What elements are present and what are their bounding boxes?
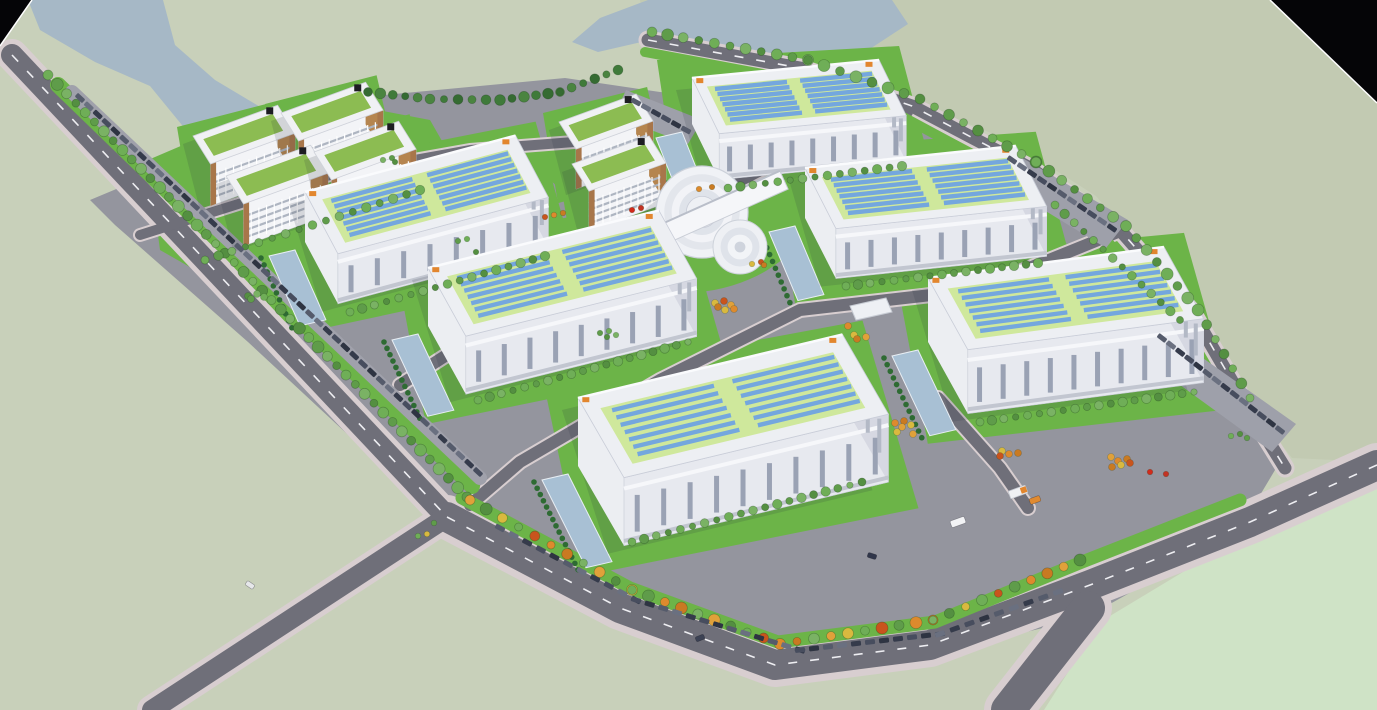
tree: [903, 276, 909, 282]
tree: [652, 532, 660, 540]
tree: [1036, 410, 1042, 416]
tree: [1006, 451, 1013, 458]
tree: [843, 628, 854, 639]
tree: [286, 314, 295, 323]
tree: [508, 94, 516, 102]
hedge: [559, 536, 565, 542]
tree: [312, 341, 324, 353]
tree: [998, 264, 1005, 271]
tree: [183, 211, 193, 221]
tree: [580, 80, 587, 87]
hedge: [384, 346, 390, 352]
roof-access-accent: [582, 397, 589, 402]
hedge: [563, 542, 569, 548]
tree: [1022, 260, 1030, 268]
tree: [1083, 403, 1090, 410]
tree: [249, 277, 257, 285]
tree: [1009, 261, 1019, 271]
tree: [515, 523, 523, 531]
tree: [861, 167, 868, 174]
tree: [590, 363, 599, 372]
tree: [944, 109, 955, 120]
tree: [1192, 304, 1204, 316]
tree: [351, 380, 359, 388]
tree: [497, 513, 507, 523]
hedge: [906, 408, 912, 414]
tree: [1229, 365, 1237, 373]
hedge: [541, 498, 547, 504]
tree: [370, 301, 378, 309]
tree: [604, 334, 610, 340]
tree: [637, 350, 647, 360]
hedge: [393, 365, 399, 371]
hedge: [258, 255, 264, 261]
hedge: [781, 286, 787, 292]
tree: [818, 60, 830, 72]
rooftop-vent: [266, 107, 273, 114]
hedge: [900, 395, 906, 401]
tree: [383, 298, 389, 304]
end-pier: [211, 162, 217, 206]
tree: [117, 145, 128, 156]
tree: [974, 267, 981, 274]
tree: [1191, 389, 1197, 395]
tree: [749, 181, 757, 189]
hedge: [381, 339, 387, 345]
rooftop-vent: [299, 147, 306, 154]
end-pier: [589, 189, 595, 231]
tree: [842, 282, 850, 290]
hedge: [897, 388, 903, 394]
tree: [254, 291, 261, 298]
tree: [973, 125, 984, 136]
tree: [308, 221, 317, 230]
tree: [1163, 471, 1169, 477]
hedge: [544, 504, 550, 510]
tree: [293, 322, 305, 334]
hedge: [261, 262, 267, 268]
tree: [899, 424, 906, 431]
tree: [1128, 271, 1137, 280]
tree: [296, 226, 302, 232]
tree: [547, 541, 555, 549]
tree: [613, 357, 623, 367]
tree: [1108, 454, 1115, 461]
tree: [1228, 433, 1234, 439]
tree: [396, 426, 407, 437]
tree: [812, 174, 818, 180]
industrial-park-aerial-view: [0, 0, 1377, 710]
tree: [415, 185, 425, 195]
tree: [594, 567, 605, 578]
tree: [994, 589, 1002, 597]
tree: [867, 77, 877, 87]
tree: [892, 420, 899, 427]
tree: [341, 370, 351, 380]
tree: [465, 495, 475, 505]
tree: [1000, 415, 1008, 423]
tree: [452, 482, 464, 494]
tree: [976, 418, 984, 426]
tree: [787, 177, 793, 183]
hedge: [396, 371, 402, 377]
tree: [62, 89, 72, 99]
tree: [960, 119, 968, 127]
tree: [474, 396, 482, 404]
tree: [709, 184, 715, 190]
hedge: [534, 485, 540, 491]
tree: [191, 219, 203, 231]
hedge: [531, 479, 537, 485]
tree: [230, 259, 238, 267]
tree: [456, 277, 463, 284]
rooftop-vent: [387, 123, 394, 130]
tree: [1070, 219, 1078, 227]
tree: [662, 29, 674, 41]
tree: [543, 88, 554, 99]
tree: [1096, 204, 1104, 212]
factory-building-2: [789, 146, 1047, 287]
roof-access-accent: [646, 214, 653, 219]
tree: [473, 249, 479, 255]
tree: [1082, 194, 1092, 204]
tree: [731, 306, 738, 313]
tree: [850, 71, 862, 83]
tree: [726, 42, 734, 50]
tree: [1012, 414, 1018, 420]
tree: [378, 407, 389, 418]
tree: [757, 48, 765, 56]
tree: [876, 622, 888, 634]
tree: [1031, 157, 1041, 167]
hedge: [778, 279, 784, 285]
tree: [433, 463, 445, 475]
tree: [248, 296, 255, 303]
tree: [1219, 349, 1229, 359]
tree: [938, 270, 947, 279]
tree: [886, 164, 893, 171]
hedge: [919, 435, 925, 441]
tree: [212, 240, 220, 248]
tree: [797, 493, 807, 503]
hedge: [387, 352, 393, 358]
tree: [1043, 165, 1055, 177]
tree: [1109, 464, 1116, 471]
tree: [1057, 175, 1067, 185]
tree: [370, 399, 378, 407]
hedge: [399, 377, 405, 383]
hedge: [891, 375, 897, 381]
tree: [532, 91, 541, 100]
tree: [519, 91, 530, 102]
tree: [495, 95, 506, 106]
roof-access-accent: [866, 62, 873, 67]
hedge: [910, 415, 916, 421]
tree: [432, 284, 438, 290]
tree: [724, 184, 732, 192]
tree: [440, 96, 447, 103]
tree: [987, 416, 997, 426]
tree: [660, 344, 670, 354]
tree: [1015, 450, 1022, 457]
tree: [722, 307, 729, 314]
tree: [269, 235, 275, 241]
tree: [836, 67, 845, 76]
tree: [1121, 221, 1132, 232]
tree: [425, 94, 435, 104]
tree: [349, 208, 356, 215]
tree: [774, 178, 782, 186]
tree: [603, 361, 610, 368]
tree: [424, 531, 430, 537]
tree: [721, 298, 728, 305]
tree: [740, 43, 751, 54]
tree: [762, 504, 769, 511]
tree: [894, 620, 904, 630]
tree: [481, 95, 491, 105]
hedge: [881, 355, 887, 361]
rooftop-vent: [354, 84, 361, 91]
tree: [431, 520, 437, 526]
tree: [606, 328, 612, 334]
hedge: [402, 384, 408, 390]
tree: [1131, 397, 1138, 404]
hedge: [556, 529, 562, 535]
tree: [1071, 185, 1079, 193]
tree: [736, 182, 746, 192]
tree: [872, 164, 882, 174]
tree: [695, 36, 703, 44]
tree: [1089, 236, 1097, 244]
tree: [676, 525, 684, 533]
tree: [361, 203, 371, 213]
tree: [897, 161, 907, 171]
tree: [567, 83, 576, 92]
tree: [560, 210, 566, 216]
tree: [322, 217, 329, 224]
tree: [1002, 141, 1013, 152]
tree: [281, 229, 290, 238]
tree: [1119, 264, 1125, 270]
tree: [879, 278, 885, 284]
tree: [915, 94, 925, 104]
tree: [910, 431, 917, 438]
tree: [388, 90, 397, 99]
tree: [1202, 320, 1212, 330]
tree: [890, 276, 898, 284]
tree: [715, 304, 722, 311]
tree: [660, 598, 669, 607]
tree: [556, 88, 563, 95]
architectural-rendering-stage: aerial-3d-rendering-of-industrial-park-c…: [0, 0, 1377, 710]
tree: [672, 341, 680, 349]
hedge: [553, 523, 559, 529]
tree: [201, 229, 211, 239]
tree: [1147, 289, 1156, 298]
tree: [1033, 258, 1043, 268]
tree: [927, 273, 933, 279]
tree: [823, 171, 832, 180]
tree: [639, 534, 649, 544]
tree: [415, 533, 421, 539]
tree: [1108, 254, 1117, 263]
tree: [977, 595, 988, 606]
tree: [700, 519, 709, 528]
tree: [521, 383, 529, 391]
tree: [91, 118, 99, 126]
tree: [146, 174, 155, 183]
roof-access-accent: [829, 338, 836, 343]
tree: [304, 333, 314, 343]
tree: [1154, 393, 1162, 401]
tree: [988, 134, 997, 143]
hedge: [787, 300, 793, 306]
rooftop-vent: [625, 96, 632, 103]
tree: [804, 56, 813, 65]
tree: [845, 323, 852, 330]
tree: [626, 355, 633, 362]
tree: [172, 200, 184, 212]
tree: [613, 65, 623, 75]
tree: [1027, 576, 1036, 585]
tree: [480, 503, 492, 515]
tree: [836, 170, 843, 177]
tree: [510, 387, 516, 393]
tree: [809, 633, 820, 644]
tree: [505, 263, 512, 270]
tree: [1060, 209, 1070, 219]
tree: [1108, 211, 1119, 222]
hedge: [784, 293, 790, 299]
tree: [847, 482, 853, 488]
tree: [154, 182, 166, 194]
tree: [395, 294, 403, 302]
tree: [772, 499, 782, 509]
tree: [931, 103, 939, 111]
tree: [453, 94, 463, 104]
tree: [590, 74, 600, 84]
tree: [408, 291, 414, 297]
tree: [1107, 400, 1114, 407]
tree: [1118, 397, 1128, 407]
end-pier: [244, 202, 250, 246]
tree: [1147, 469, 1153, 475]
tree: [914, 273, 923, 282]
tree: [628, 538, 636, 546]
tree: [1178, 390, 1186, 398]
tree: [228, 247, 236, 255]
tree: [1173, 282, 1182, 291]
tree: [530, 531, 540, 541]
tree: [649, 348, 657, 356]
tree: [908, 422, 915, 429]
tree: [1142, 394, 1152, 404]
tree: [1237, 431, 1243, 437]
tree: [737, 510, 744, 517]
tree: [562, 549, 573, 560]
roof-access-accent: [809, 168, 816, 173]
tree: [443, 280, 452, 289]
tree: [480, 270, 487, 277]
hedge: [405, 390, 411, 396]
tree: [950, 269, 957, 276]
tree: [1161, 268, 1173, 280]
hedge: [390, 358, 396, 364]
tree: [962, 267, 971, 276]
tree: [603, 71, 610, 78]
hedge: [767, 252, 773, 258]
tree: [1071, 404, 1080, 413]
tree: [910, 617, 922, 629]
hedge: [537, 492, 543, 498]
tree: [127, 155, 136, 164]
tree: [793, 637, 801, 645]
tree: [1060, 407, 1066, 413]
tree: [467, 273, 476, 282]
tree: [333, 362, 341, 370]
tree: [1042, 568, 1053, 579]
hedge: [894, 382, 900, 388]
annex-core: [735, 242, 746, 253]
tree: [542, 214, 548, 220]
tree: [848, 168, 857, 177]
tree: [944, 608, 954, 618]
tree: [642, 590, 654, 602]
tree: [1182, 292, 1194, 304]
tree: [455, 238, 461, 244]
tree: [1094, 401, 1103, 410]
tree: [1246, 394, 1254, 402]
tree: [375, 88, 386, 99]
hedge: [776, 272, 782, 278]
tree: [335, 212, 344, 221]
tree: [929, 616, 937, 624]
tree: [834, 484, 842, 492]
tree: [1138, 281, 1145, 288]
tree: [1236, 378, 1247, 389]
tree: [798, 174, 807, 183]
tree: [1176, 316, 1183, 323]
tree: [863, 334, 870, 341]
tree: [551, 212, 557, 218]
tree: [1141, 245, 1152, 256]
tree: [853, 280, 863, 290]
roof-access-accent: [432, 267, 439, 272]
tree: [556, 374, 562, 380]
hedge: [550, 517, 556, 523]
tree: [72, 99, 80, 107]
tree: [1166, 306, 1176, 316]
tree: [749, 506, 758, 515]
tree: [214, 251, 224, 261]
tree: [1074, 554, 1086, 566]
tree: [1059, 562, 1068, 571]
tree: [762, 180, 768, 186]
tree: [665, 529, 671, 535]
tree: [403, 190, 411, 198]
tree: [1051, 201, 1059, 209]
tree: [485, 392, 495, 402]
hedge: [887, 368, 893, 374]
tree: [392, 159, 398, 165]
hedge: [547, 511, 553, 517]
tree: [1127, 460, 1134, 467]
tree: [516, 258, 526, 268]
roof-access-accent: [309, 191, 316, 196]
tree: [678, 33, 688, 43]
tree: [1244, 435, 1250, 441]
hedge: [773, 265, 779, 271]
